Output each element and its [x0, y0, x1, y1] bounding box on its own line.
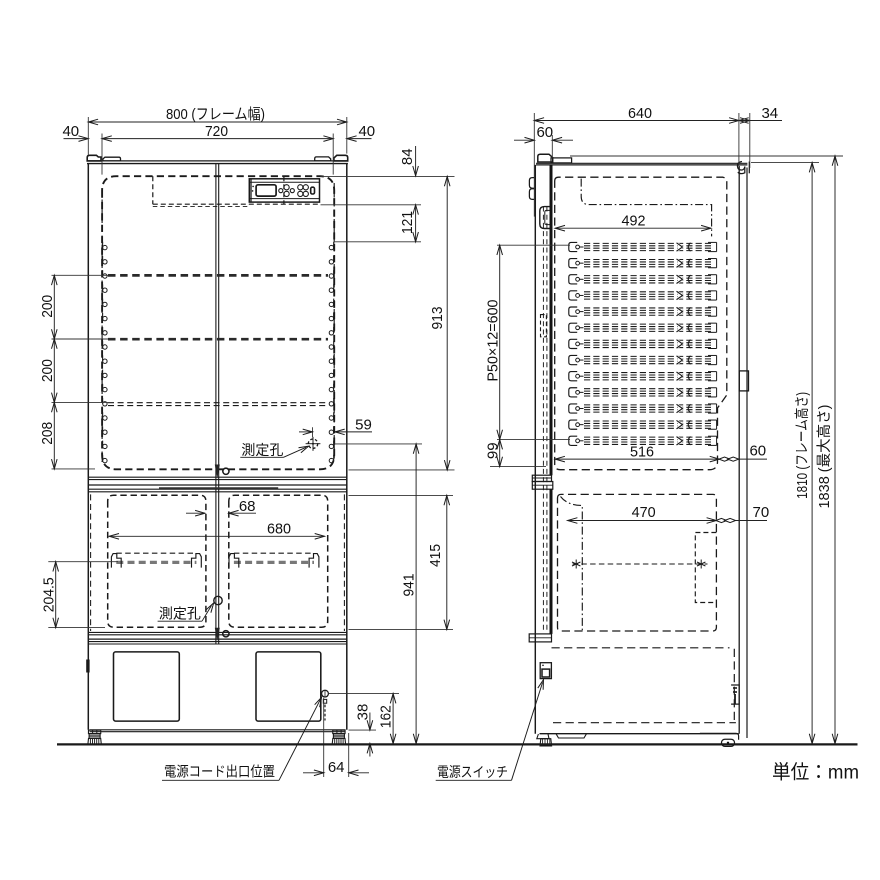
- svg-text:電源スイッチ: 電源スイッチ: [437, 764, 508, 780]
- svg-text:64: 64: [328, 759, 345, 776]
- svg-text:415: 415: [427, 544, 444, 567]
- svg-text:電源コード出口位置: 電源コード出口位置: [164, 764, 275, 780]
- svg-text:208: 208: [39, 422, 56, 445]
- svg-text:38: 38: [355, 704, 372, 721]
- svg-text:1810 (フレーム高さ): 1810 (フレーム高さ): [794, 392, 811, 499]
- svg-text:162: 162: [378, 705, 395, 728]
- svg-text:200: 200: [39, 359, 56, 382]
- svg-text:34: 34: [761, 105, 778, 122]
- svg-text:680: 680: [267, 520, 291, 537]
- svg-text:200: 200: [39, 295, 56, 318]
- svg-text:941: 941: [401, 574, 418, 597]
- svg-text:70: 70: [753, 504, 770, 521]
- svg-text:720: 720: [205, 123, 228, 140]
- svg-text:913: 913: [429, 307, 446, 330]
- svg-text:40: 40: [358, 123, 375, 140]
- svg-text:1838 (最大高さ): 1838 (最大高さ): [816, 405, 833, 509]
- svg-text:68: 68: [239, 498, 256, 515]
- svg-text:640: 640: [628, 105, 652, 122]
- svg-text:121: 121: [399, 211, 416, 234]
- svg-text:P50×12=600: P50×12=600: [484, 300, 501, 382]
- svg-text:測定孔: 測定孔: [241, 442, 283, 458]
- svg-text:99: 99: [484, 442, 501, 459]
- svg-text:492: 492: [622, 212, 646, 229]
- svg-text:204.5: 204.5: [41, 577, 58, 612]
- svg-text:800 (フレーム幅): 800 (フレーム幅): [166, 106, 265, 123]
- svg-text:516: 516: [630, 443, 654, 460]
- svg-text:60: 60: [749, 442, 766, 459]
- svg-text:40: 40: [62, 123, 79, 140]
- svg-text:単位：mm: 単位：mm: [772, 762, 859, 784]
- svg-text:84: 84: [399, 148, 416, 165]
- svg-text:59: 59: [355, 417, 372, 434]
- svg-text:60: 60: [536, 124, 553, 141]
- svg-text:470: 470: [632, 504, 656, 521]
- svg-text:測定孔: 測定孔: [159, 606, 201, 622]
